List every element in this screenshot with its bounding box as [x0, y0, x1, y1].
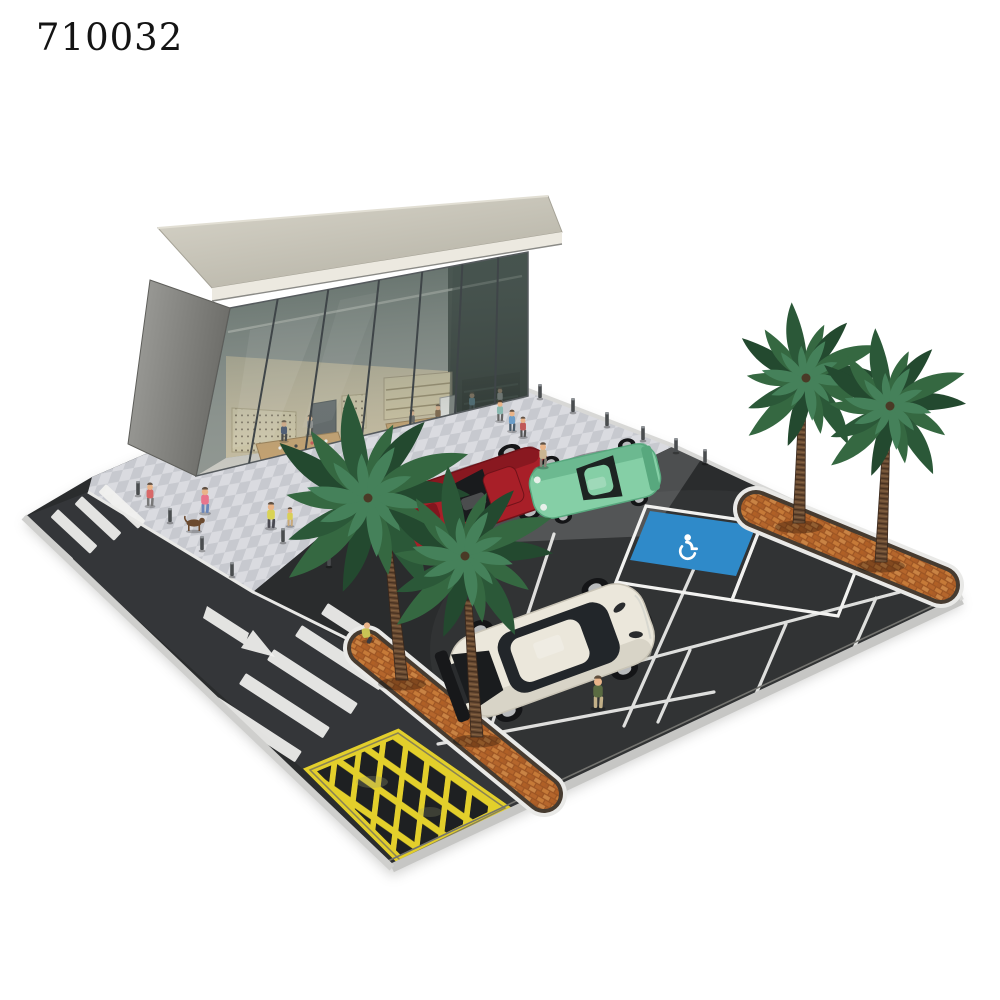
product-photo: 710032	[0, 0, 1000, 1000]
product-code-label: 710032	[36, 16, 183, 59]
diorama-scene	[0, 0, 1000, 1000]
